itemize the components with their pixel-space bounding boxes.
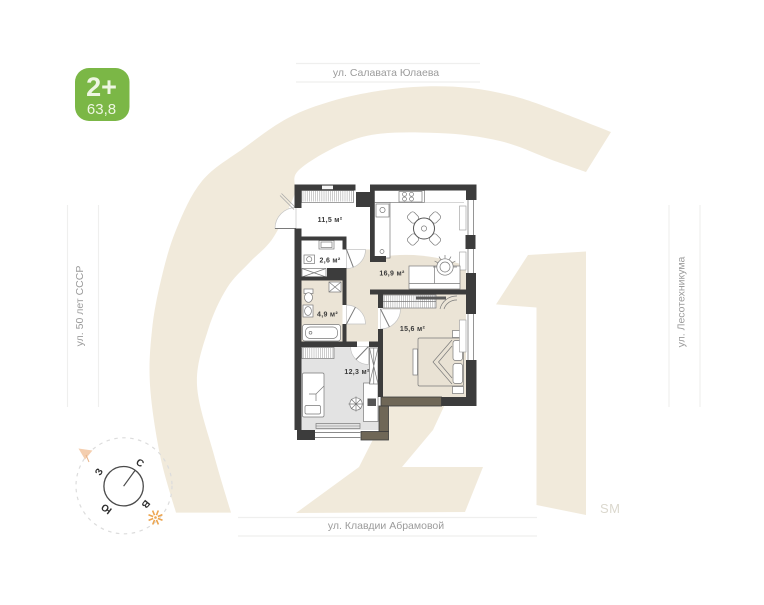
svg-text:ул. Клавдии Абрамовой: ул. Клавдии Абрамовой: [328, 520, 444, 532]
svg-text:2+: 2+: [86, 72, 117, 102]
svg-text:15,6 м²: 15,6 м²: [400, 326, 426, 333]
svg-text:2,6 м²: 2,6 м²: [320, 258, 341, 265]
svg-text:16,9 м²: 16,9 м²: [379, 271, 405, 278]
svg-text:4,9 м²: 4,9 м²: [317, 312, 338, 319]
svg-text:ул. Лесотехникума: ул. Лесотехникума: [676, 256, 688, 347]
svg-text:11,5 м²: 11,5 м²: [318, 217, 343, 224]
svg-text:ул. 50 лет СССР: ул. 50 лет СССР: [74, 266, 86, 347]
svg-text:12,3 м²: 12,3 м²: [344, 369, 370, 376]
svg-text:ул. Салавата Юлаева: ул. Салавата Юлаева: [333, 67, 439, 79]
svg-text:63,8: 63,8: [87, 101, 116, 118]
svg-text:SM: SM: [600, 501, 621, 516]
